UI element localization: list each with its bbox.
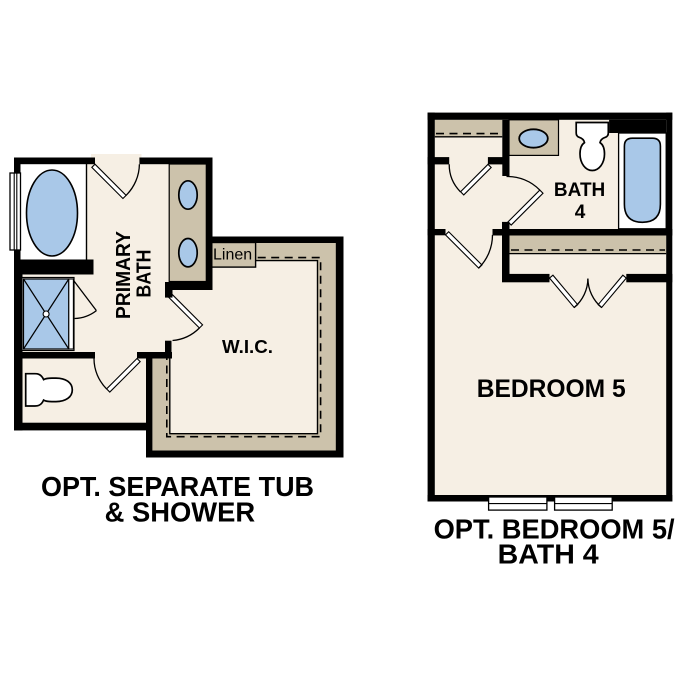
svg-text:W.I.C.: W.I.C. (222, 336, 273, 357)
svg-text:BEDROOM 5: BEDROOM 5 (477, 375, 626, 403)
svg-text:BATH: BATH (554, 180, 605, 201)
svg-text:PRIMARY: PRIMARY (113, 230, 135, 319)
svg-text:BATH 4: BATH 4 (498, 538, 600, 569)
svg-text:& SHOWER: & SHOWER (105, 497, 256, 528)
svg-text:BATH: BATH (134, 250, 156, 298)
svg-text:4: 4 (575, 202, 586, 223)
svg-text:Linen: Linen (213, 246, 252, 263)
